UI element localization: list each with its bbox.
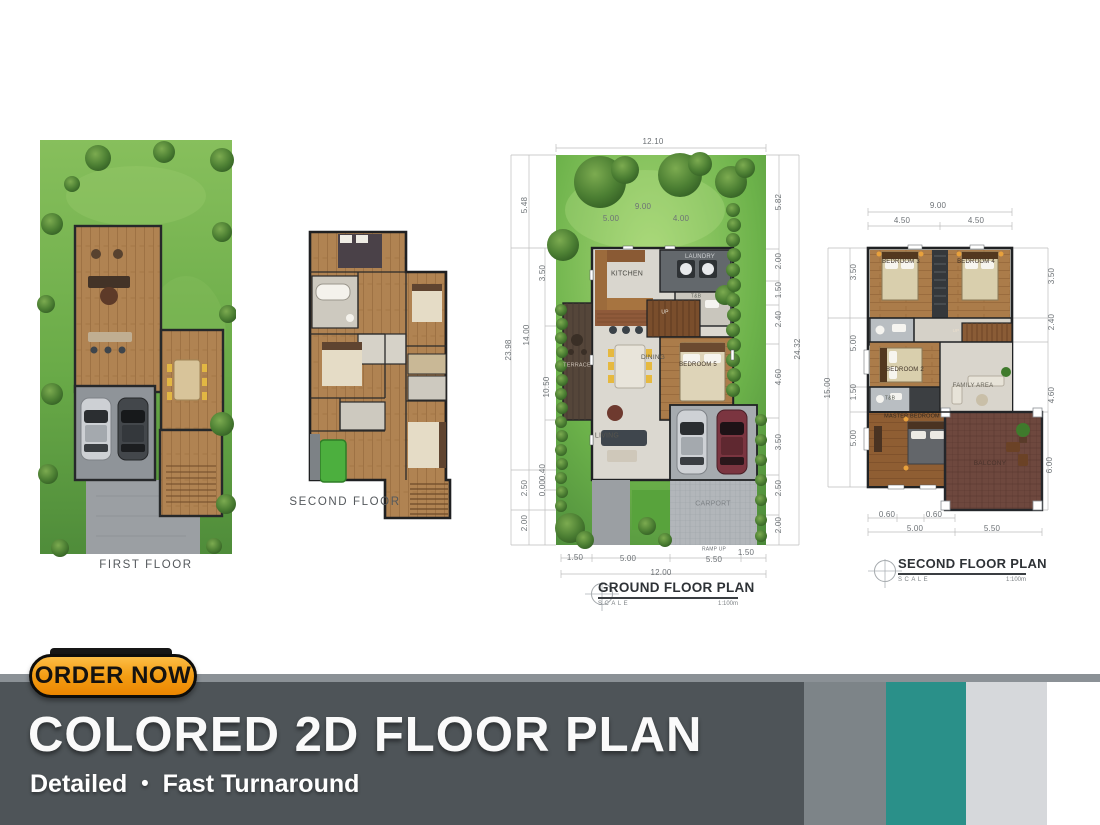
room-label: LAUNDRY [685,254,715,260]
room-label: UP [953,329,960,334]
ground-floor-plan-title: GROUND FLOOR PLAN [598,580,738,599]
plan-first-floor: FIRST FLOOR [36,136,236,581]
order-now-button[interactable]: ORDER NOW [29,654,197,698]
second-floor-label: SECOND FLOOR [289,496,400,508]
room-label: BALCONY [974,461,1006,468]
banner-stripe-teal [886,682,966,825]
room-label: BEDROOM 4 [957,259,995,265]
room-label: UP [661,311,668,316]
room-label: CARPORT [695,501,731,508]
scale-value: 1:100m [718,601,738,607]
order-now-label: ORDER NOW [35,662,192,690]
subtitle-turnaround: Fast Turnaround [163,770,360,798]
upper-floor-title-block: SECOND FLOOR PLAN SCALE 1:100m [898,556,1026,583]
scale-value: 1:100m [1006,577,1026,583]
plan-ground-floor: 12.109.005.004.005.483.5023.9814.0010.50… [495,130,810,610]
room-label: TERRACE [563,363,591,369]
north-compass-icon [868,558,902,588]
ground-floor-title-block: GROUND FLOOR PLAN SCALE 1:100m [598,580,738,607]
room-label: BEDROOM 3 [882,259,920,265]
plan-upper-floor: 9.004.504.5015.003.505.001.505.003.502.4… [820,190,1080,585]
room-label: LIVING [595,433,619,440]
room-label: BEDROOM 2 [886,367,924,373]
room-label: KITCHEN [611,271,643,278]
room-label: DINING [641,355,665,362]
banner-stripe-light [966,682,1047,825]
scale-label: SCALE [598,601,630,607]
plan-second-floor: SECOND FLOOR [300,226,460,521]
subtitle-detailed: Detailed [30,770,127,798]
upper-floor-plan-title: SECOND FLOOR PLAN [898,556,1026,575]
banner-subtitle: Detailed•Fast Turnaround [30,770,359,799]
first-floor-label: FIRST FLOOR [99,559,192,571]
bullet-separator: • [141,772,148,795]
page-root: FIRST FLOOR [0,0,1100,825]
room-label: FAMILY AREA [953,383,994,389]
room-label: BEDROOM 5 [679,362,717,368]
room-label: T&B [691,295,701,300]
banner-stripe-gray [804,682,886,825]
banner-title: COLORED 2D FLOOR PLAN [28,710,702,761]
scale-label: SCALE [898,577,930,583]
room-label: T&B [885,397,895,402]
room-label: MASTER BEDROOM [884,414,940,420]
